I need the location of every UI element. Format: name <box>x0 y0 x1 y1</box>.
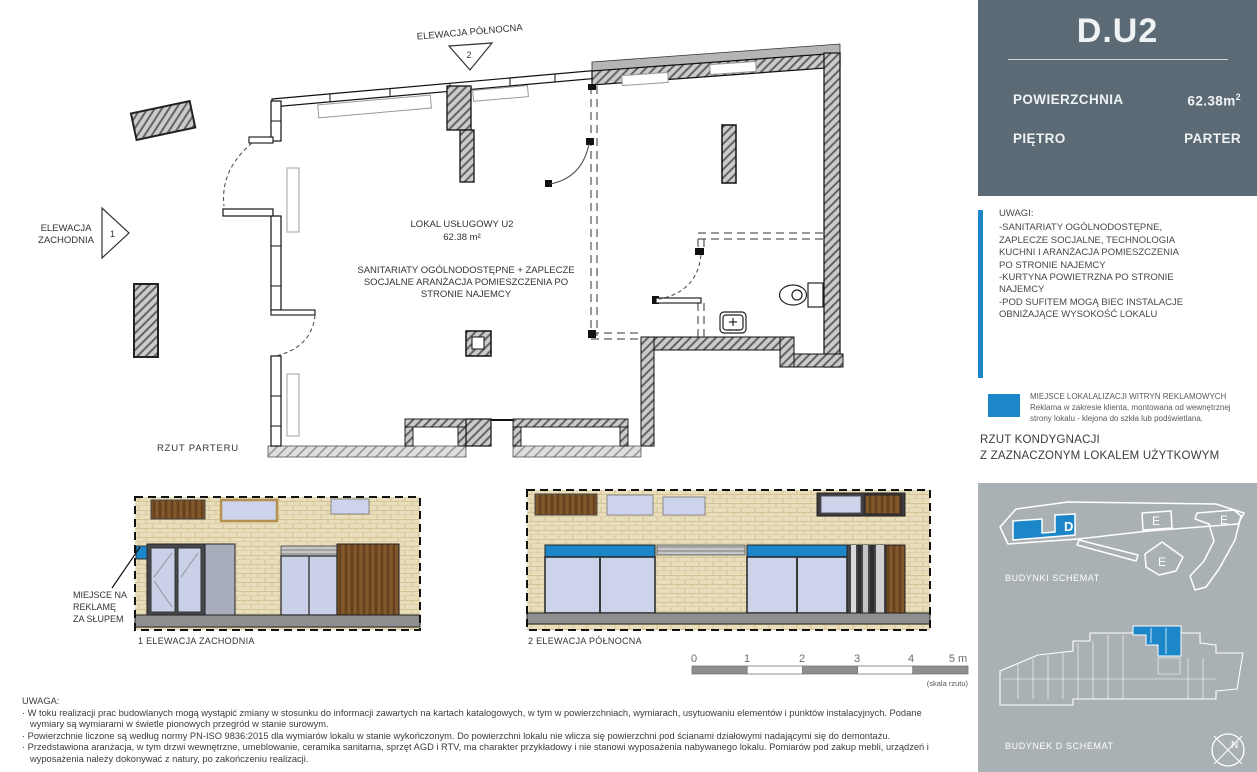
scale-tick-4: 4 <box>908 653 914 665</box>
ad-legend: MIEJSCE LOKALALIZACJI WITRYN REKLAMOWYCH… <box>986 392 1246 424</box>
disclaimer-bullet-2: · Powierzchnie liczone są według normy P… <box>22 731 944 743</box>
elevation-north-caption: 2 ELEWACJA PÓŁNOCNA <box>528 636 642 646</box>
unit-header-panel: D.U2 POWIERZCHNIA 62.38m2 PIĘTRO PARTER <box>978 0 1257 196</box>
compass-icon <box>1212 734 1244 766</box>
notes-accent-bar <box>978 210 983 378</box>
floor-label: PIĘTRO <box>1013 131 1066 146</box>
annotation-line-3: STRONIE NAJEMCY <box>421 289 512 300</box>
notes-text: -SANITARIATY OGÓLNODOSTĘPNE, ZAPLECZE SO… <box>999 222 1238 321</box>
scale-tick-0: 0 <box>691 653 697 665</box>
ad-note-line-3: ZA SŁUPEM <box>73 614 124 624</box>
building-e3-label: E <box>1158 555 1166 569</box>
elevation-west-caption: 1 ELEWACJA ZACHODNIA <box>138 636 255 646</box>
building-d-plan <box>1000 633 1243 705</box>
area-label: POWIERZCHNIA <box>1013 92 1124 109</box>
section-heading-line-1: RZUT KONDYGNACJI <box>980 433 1219 449</box>
scale-tick-2: 2 <box>799 653 805 665</box>
elevation-north-drawing <box>527 490 930 630</box>
compass-north-label: N <box>1231 740 1238 751</box>
schematic-panel: D E E E BUDYNKI SCHEMAT <box>978 483 1257 772</box>
scale-tick-1: 1 <box>744 653 750 665</box>
disclaimer-bullet-1: · W toku realizacji prac budowlanych mog… <box>22 708 944 731</box>
north-elevation-marker: ELEWACJA PÓŁNOCNA 2 <box>416 22 524 70</box>
site-plan-caption: BUDYNKI SCHEMAT <box>1005 573 1100 583</box>
west-elevation-label-2: ZACHODNIA <box>38 235 95 246</box>
scale-note: (skala rzutu) <box>927 679 969 688</box>
exterior-piers <box>131 101 195 357</box>
unit-id: D.U2 <box>978 12 1257 51</box>
annotation-line-2: SOCJALNE ARANŻACJA POMIESZCZENIA PO <box>364 277 568 288</box>
west-elevation-label-1: ELEWACJA <box>41 223 93 234</box>
disclaimer-title: UWAGA: <box>22 696 944 708</box>
area-value: 62.38m2 <box>1187 92 1241 109</box>
building-e1-label: E <box>1152 514 1160 528</box>
north-elevation-label: ELEWACJA PÓŁNOCNA <box>416 22 524 42</box>
building-e2-label: E <box>1220 513 1228 527</box>
ad-legend-swatch <box>988 394 1020 417</box>
north-elevation-number: 2 <box>466 50 471 60</box>
elevation-west-drawing <box>135 497 420 630</box>
section-heading-line-2: Z ZAZNACZONYM LOKALEM UŻYTKOWYM <box>980 449 1219 465</box>
section-heading: RZUT KONDYGNACJI Z ZAZNACZONYM LOKALEM U… <box>980 433 1219 464</box>
plan-fixtures <box>287 61 756 436</box>
annotation-line-1: SANITARIATY OGÓLNODOSTĘPNE + ZAPLECZE <box>357 265 574 276</box>
building-plan-caption: BUDYNEK D SCHEMAT <box>1005 741 1114 751</box>
header-divider <box>1008 59 1228 60</box>
ad-legend-description: Reklama w zakresie klienta, montowana od… <box>1030 403 1246 425</box>
notes-section: UWAGI: -SANITARIATY OGÓLNODOSTĘPNE, ZAPL… <box>978 208 1238 322</box>
ad-note-line-1: MIEJSCE NA <box>73 590 127 600</box>
ad-legend-title: MIEJSCE LOKALALIZACJI WITRYN REKLAMOWYCH <box>1030 392 1246 403</box>
unit-area: 62.38 m² <box>443 232 481 243</box>
building-d-label: D <box>1064 519 1073 534</box>
catalog-card: ELEWACJA PÓŁNOCNA 2 ELEWACJA ZACHODNIA 1… <box>0 0 1257 772</box>
disclaimer-bullet-3: · Przedstawiona aranżacja, w tym drzwi w… <box>22 742 944 765</box>
sink-symbol <box>720 312 746 333</box>
scale-tick-5: 5 m <box>949 653 967 665</box>
scale-bar: 0 1 2 3 4 5 m (skala rzutu) <box>691 653 969 688</box>
plan-caption: RZUT PARTERU <box>157 443 239 454</box>
west-elevation-number: 1 <box>110 229 115 239</box>
disclaimer: UWAGA: · W toku realizacji prac budowlan… <box>22 696 944 766</box>
floor-value: PARTER <box>1184 131 1241 146</box>
plan-walls <box>223 44 843 457</box>
ad-note-line-2: REKLAMĘ <box>73 602 116 612</box>
unit-label: LOKAL USŁUGOWY U2 <box>411 219 514 230</box>
highlighted-unit-shape <box>1133 626 1181 656</box>
notes-title: UWAGI: <box>999 208 1238 220</box>
site-schematic-drawing: D E E E BUDYNKI SCHEMAT <box>978 483 1257 772</box>
floor-plan-drawing: ELEWACJA PÓŁNOCNA 2 ELEWACJA ZACHODNIA 1… <box>0 0 975 692</box>
ad-location-note: MIEJSCE NA REKLAMĘ ZA SŁUPEM <box>73 547 140 624</box>
scale-tick-3: 3 <box>854 653 860 665</box>
toilet-symbol <box>780 283 824 307</box>
west-elevation-marker: ELEWACJA ZACHODNIA 1 <box>38 208 129 258</box>
